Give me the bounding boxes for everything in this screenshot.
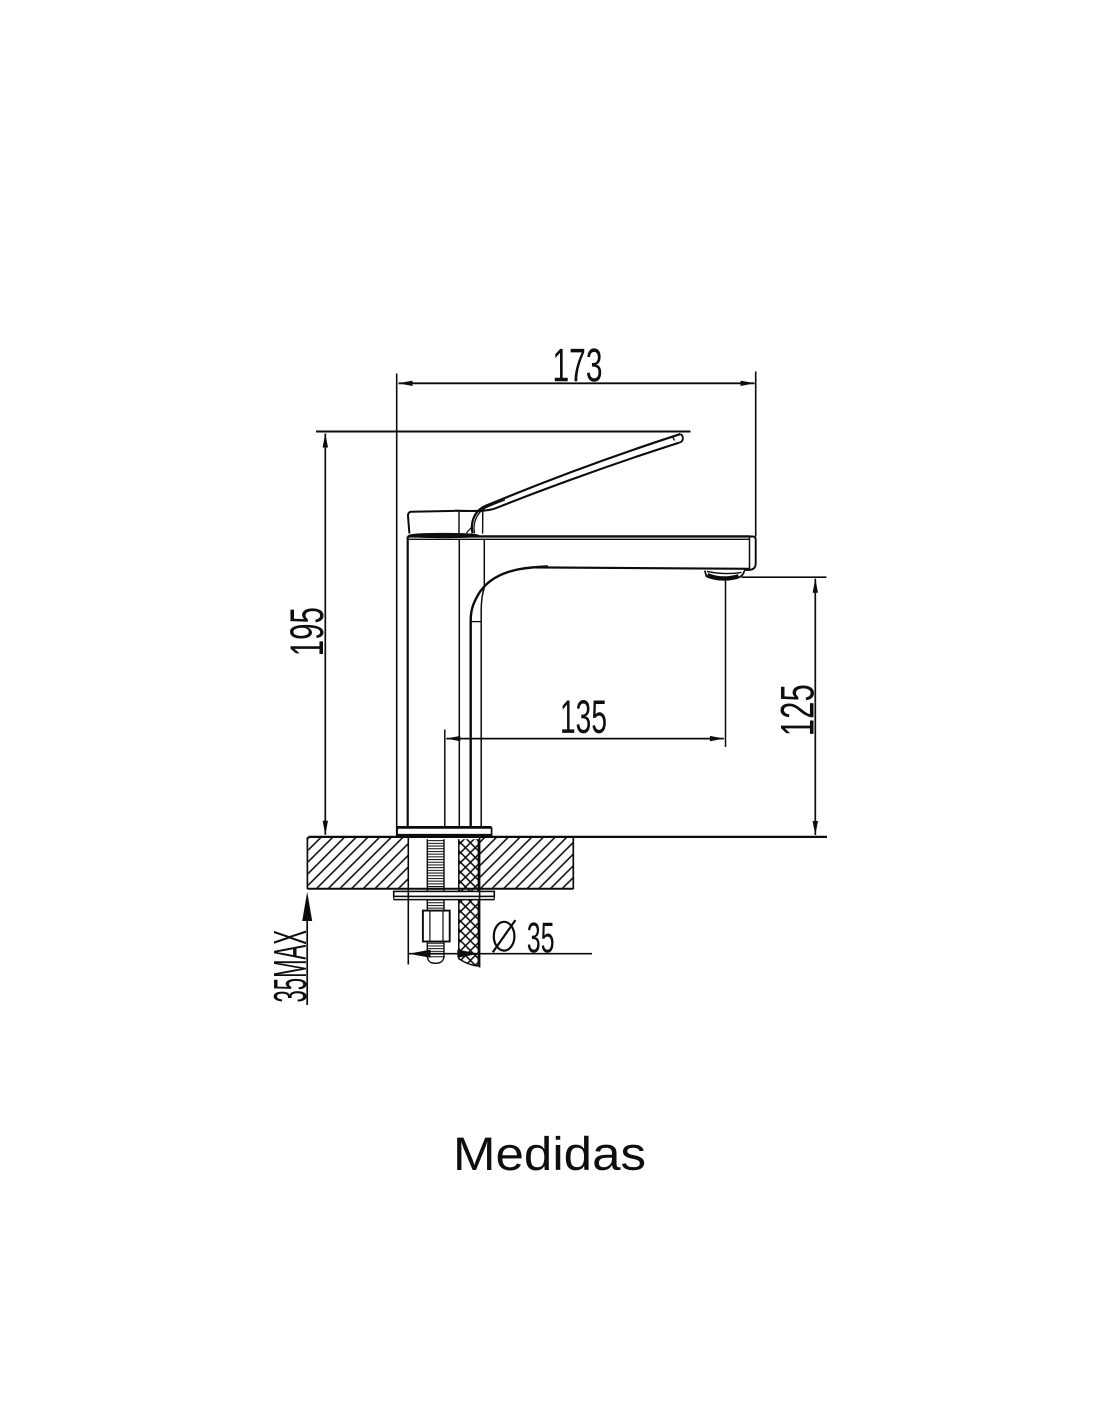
- svg-text:173: 173: [552, 338, 602, 391]
- svg-text:135: 135: [560, 690, 607, 743]
- svg-text:Medidas: Medidas: [453, 1127, 646, 1180]
- svg-text:195: 195: [280, 607, 333, 656]
- svg-text:35MAX: 35MAX: [264, 930, 316, 1003]
- svg-text:125: 125: [770, 684, 823, 736]
- svg-text:35: 35: [527, 914, 555, 962]
